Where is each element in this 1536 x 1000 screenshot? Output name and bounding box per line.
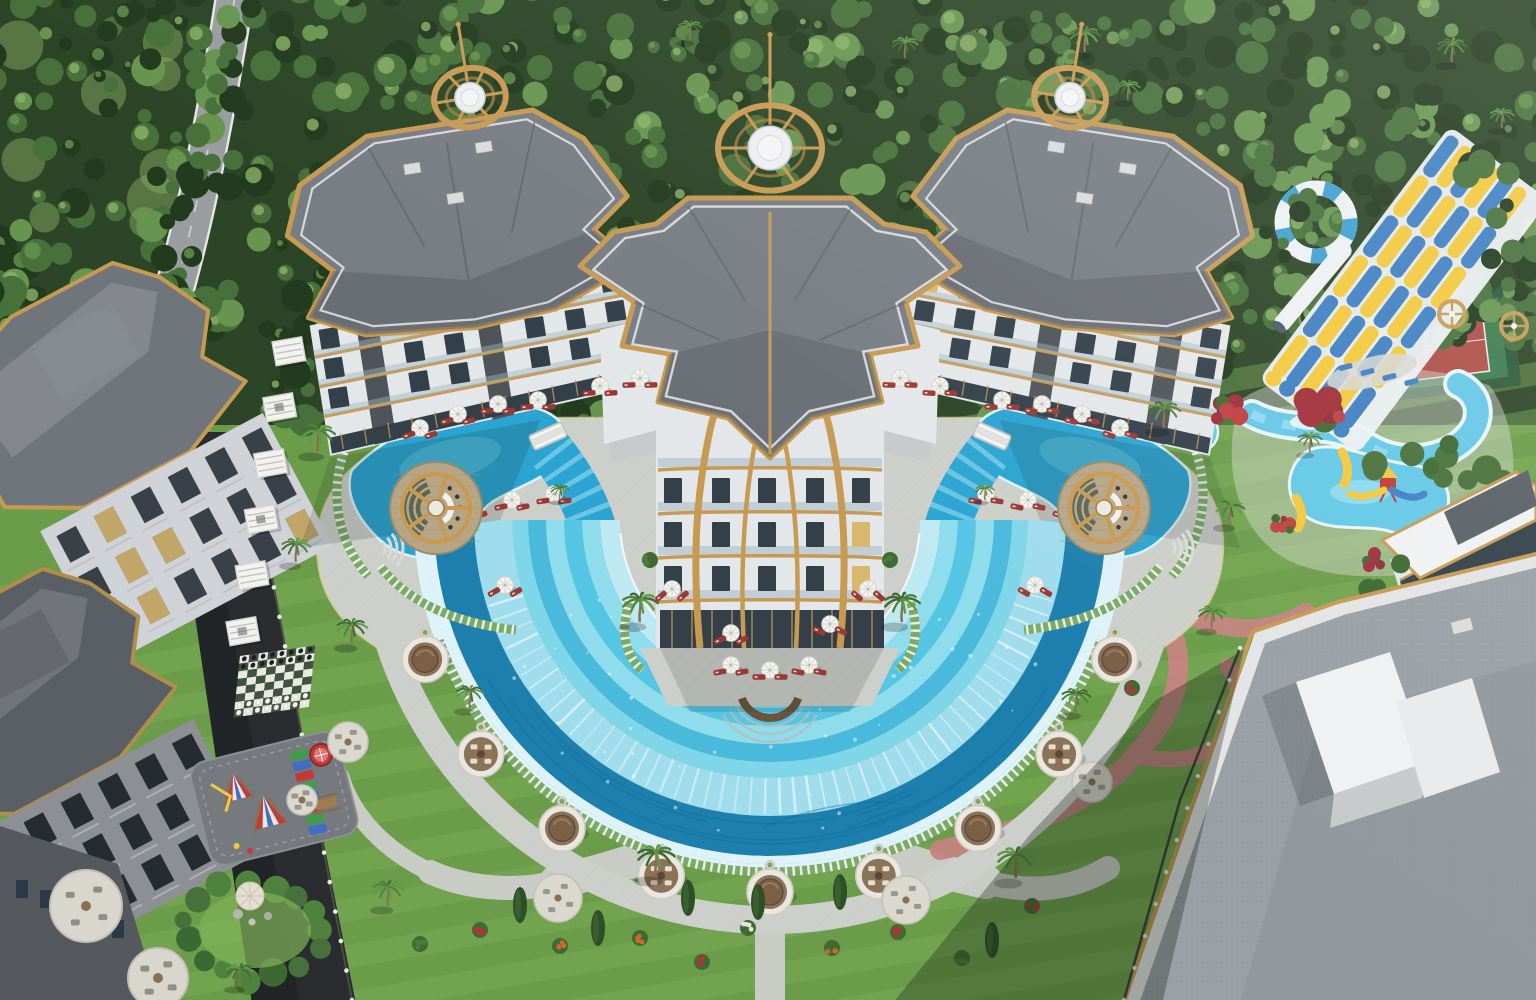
light-overlay xyxy=(0,0,1536,1000)
render-viewport xyxy=(0,0,1536,1000)
aerial-render xyxy=(0,0,1536,1000)
